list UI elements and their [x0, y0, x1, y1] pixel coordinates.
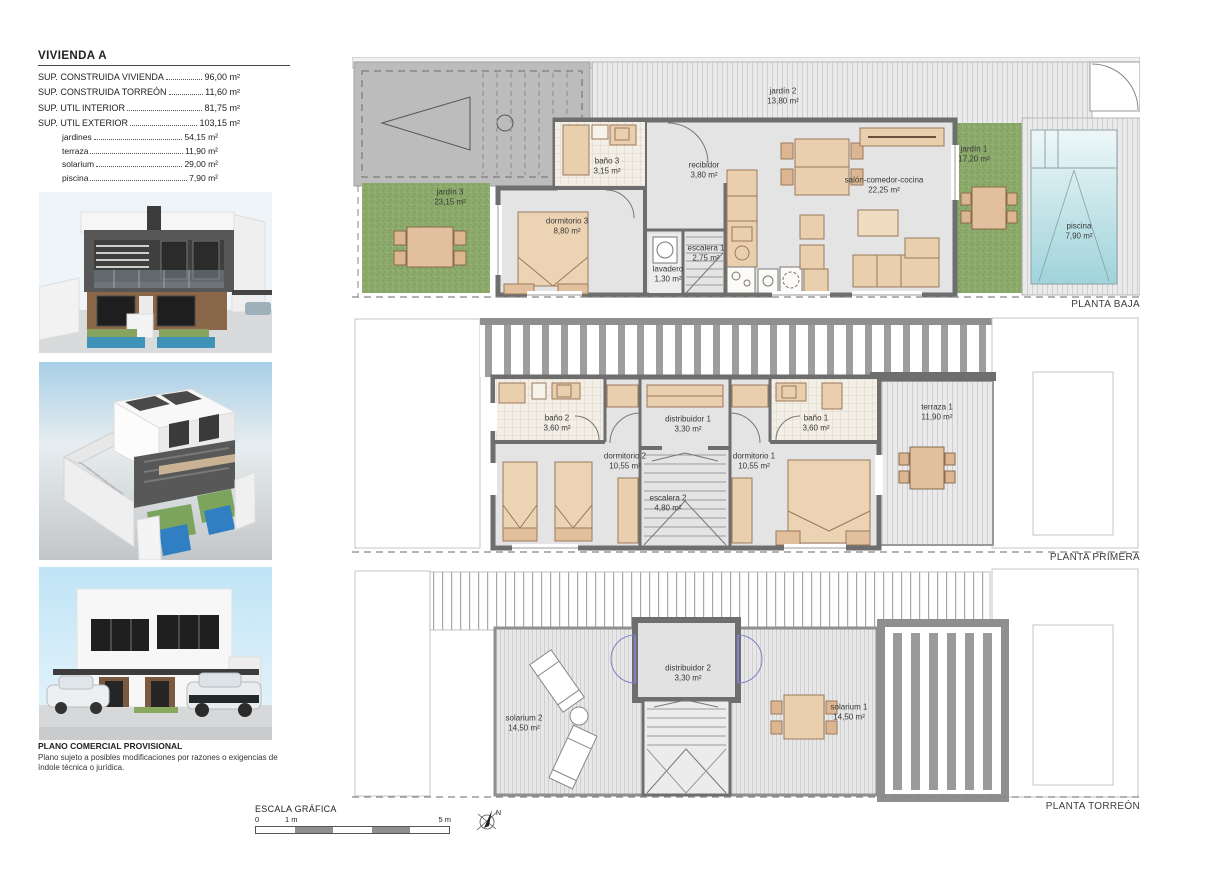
- summary-row: SUP. CONSTRUIDA VIVIENDA96,00 m²: [38, 72, 240, 82]
- room-label-jardin3: jardín 323,15 m²: [434, 187, 466, 206]
- surface-summary-block: VIVIENDA A SUP. CONSTRUIDA VIVIENDA96,00…: [38, 50, 290, 183]
- room-label-distribuidor1: distribuidor 13,30 m²: [665, 414, 711, 433]
- summary-row: SUP. CONSTRUIDA TORREÓN11,60 m²: [38, 87, 240, 97]
- room-label-jardin2: jardín 213,80 m²: [767, 86, 799, 105]
- exterior-breakdown: jardines54,15 m² terraza11,90 m² solariu…: [62, 132, 290, 183]
- room-label-escalera1: escalera 12,75 m²: [688, 243, 725, 262]
- summary-subrow: solarium29,00 m²: [62, 159, 218, 169]
- room-label-bano2: baño 23,60 m²: [543, 413, 570, 432]
- graphic-scale: ESCALA GRÁFICA 0 1 m 5 m: [255, 804, 451, 834]
- neighbor-plot: [992, 569, 1138, 797]
- terrace-terraza1: [870, 372, 996, 545]
- swimming-pool: [1031, 130, 1117, 284]
- room-label-solarium1: solarium 114,50 m²: [831, 702, 868, 721]
- render-front-view: [39, 192, 272, 353]
- room-label-lavadero: lavadero1,30 m²: [653, 264, 684, 283]
- stairs-tower: [643, 700, 730, 795]
- room-label-dormitorio3: dormitorio 38,80 m²: [546, 216, 588, 235]
- north-arrow: N: [472, 806, 506, 836]
- scale-title: ESCALA GRÁFICA: [255, 804, 451, 814]
- render-street-view: [39, 567, 272, 740]
- floorplan-planta-torreon: [352, 565, 1140, 810]
- left-plot: [355, 319, 480, 548]
- summary-subrow: piscina7,90 m²: [62, 173, 218, 183]
- louvre-pergola: [480, 318, 992, 377]
- room-label-dormitorio1: dormitorio 110,55 m²: [733, 451, 775, 470]
- plan-sheet: VIVIENDA A SUP. CONSTRUIDA VIVIENDA96,00…: [0, 0, 1220, 870]
- room-label-dormitorio2: dormitorio 210,55 m²: [604, 451, 646, 470]
- disclaimer-title: PLANO COMERCIAL PROVISIONAL: [38, 741, 283, 751]
- svg-text:N: N: [496, 810, 501, 817]
- tower-distribuidor2: [611, 620, 762, 700]
- entry-gate: [1090, 62, 1140, 111]
- room-label-bano3: baño 33,15 m²: [593, 156, 620, 175]
- summary-row: SUP. UTIL EXTERIOR103,15 m²: [38, 118, 240, 128]
- garden-jardin3: [362, 183, 490, 293]
- summary-subrow: terraza11,90 m²: [62, 146, 218, 156]
- plan-title-torreon: PLANTA TORREÓN: [1046, 801, 1140, 812]
- room-label-recibidor: recibidor3,80 m²: [689, 160, 720, 179]
- room-label-jardin1: jardín 117,20 m²: [958, 144, 990, 163]
- louvre-screen: [881, 623, 1005, 798]
- room-label-salon: salón-comedor-cocina22,25 m²: [845, 175, 924, 194]
- scale-bar: [255, 826, 450, 834]
- left-plot: [355, 571, 430, 796]
- floorplan-planta-baja: [352, 57, 1140, 300]
- neighbor-plot: [992, 318, 1138, 548]
- render-aerial-view: [39, 362, 272, 560]
- summary-row: SUP. UTIL INTERIOR81,75 m²: [38, 103, 240, 113]
- plan-title-baja: PLANTA BAJA: [1071, 299, 1140, 310]
- disclaimer-body: Plano sujeto a posibles modificaciones p…: [38, 753, 283, 774]
- floorplan-planta-primera: [352, 315, 1140, 560]
- house-first-floor: [489, 377, 883, 552]
- scale-ticks: 0 1 m 5 m: [255, 815, 451, 825]
- plan-title-primera: PLANTA PRIMERA: [1050, 552, 1140, 563]
- dwelling-title: VIVIENDA A: [38, 50, 290, 66]
- room-label-distribuidor2: distribuidor 23,30 m²: [665, 663, 711, 682]
- room-label-solarium2: solarium 214,50 m²: [506, 713, 543, 732]
- room-label-bano1: baño 13,60 m²: [802, 413, 829, 432]
- room-label-terraza1: terraza 111,90 m²: [921, 402, 953, 421]
- disclaimer-block: PLANO COMERCIAL PROVISIONAL Plano sujeto…: [38, 741, 283, 774]
- house-ground-floor: [494, 120, 959, 299]
- summary-subrow: jardines54,15 m²: [62, 132, 218, 142]
- north-arrow-icon: N: [472, 806, 506, 836]
- bed-dormitorio1: [776, 460, 870, 545]
- room-label-piscina: piscina7,90 m²: [1065, 221, 1092, 240]
- room-label-escalera2: escalera 24,80 m²: [650, 493, 687, 512]
